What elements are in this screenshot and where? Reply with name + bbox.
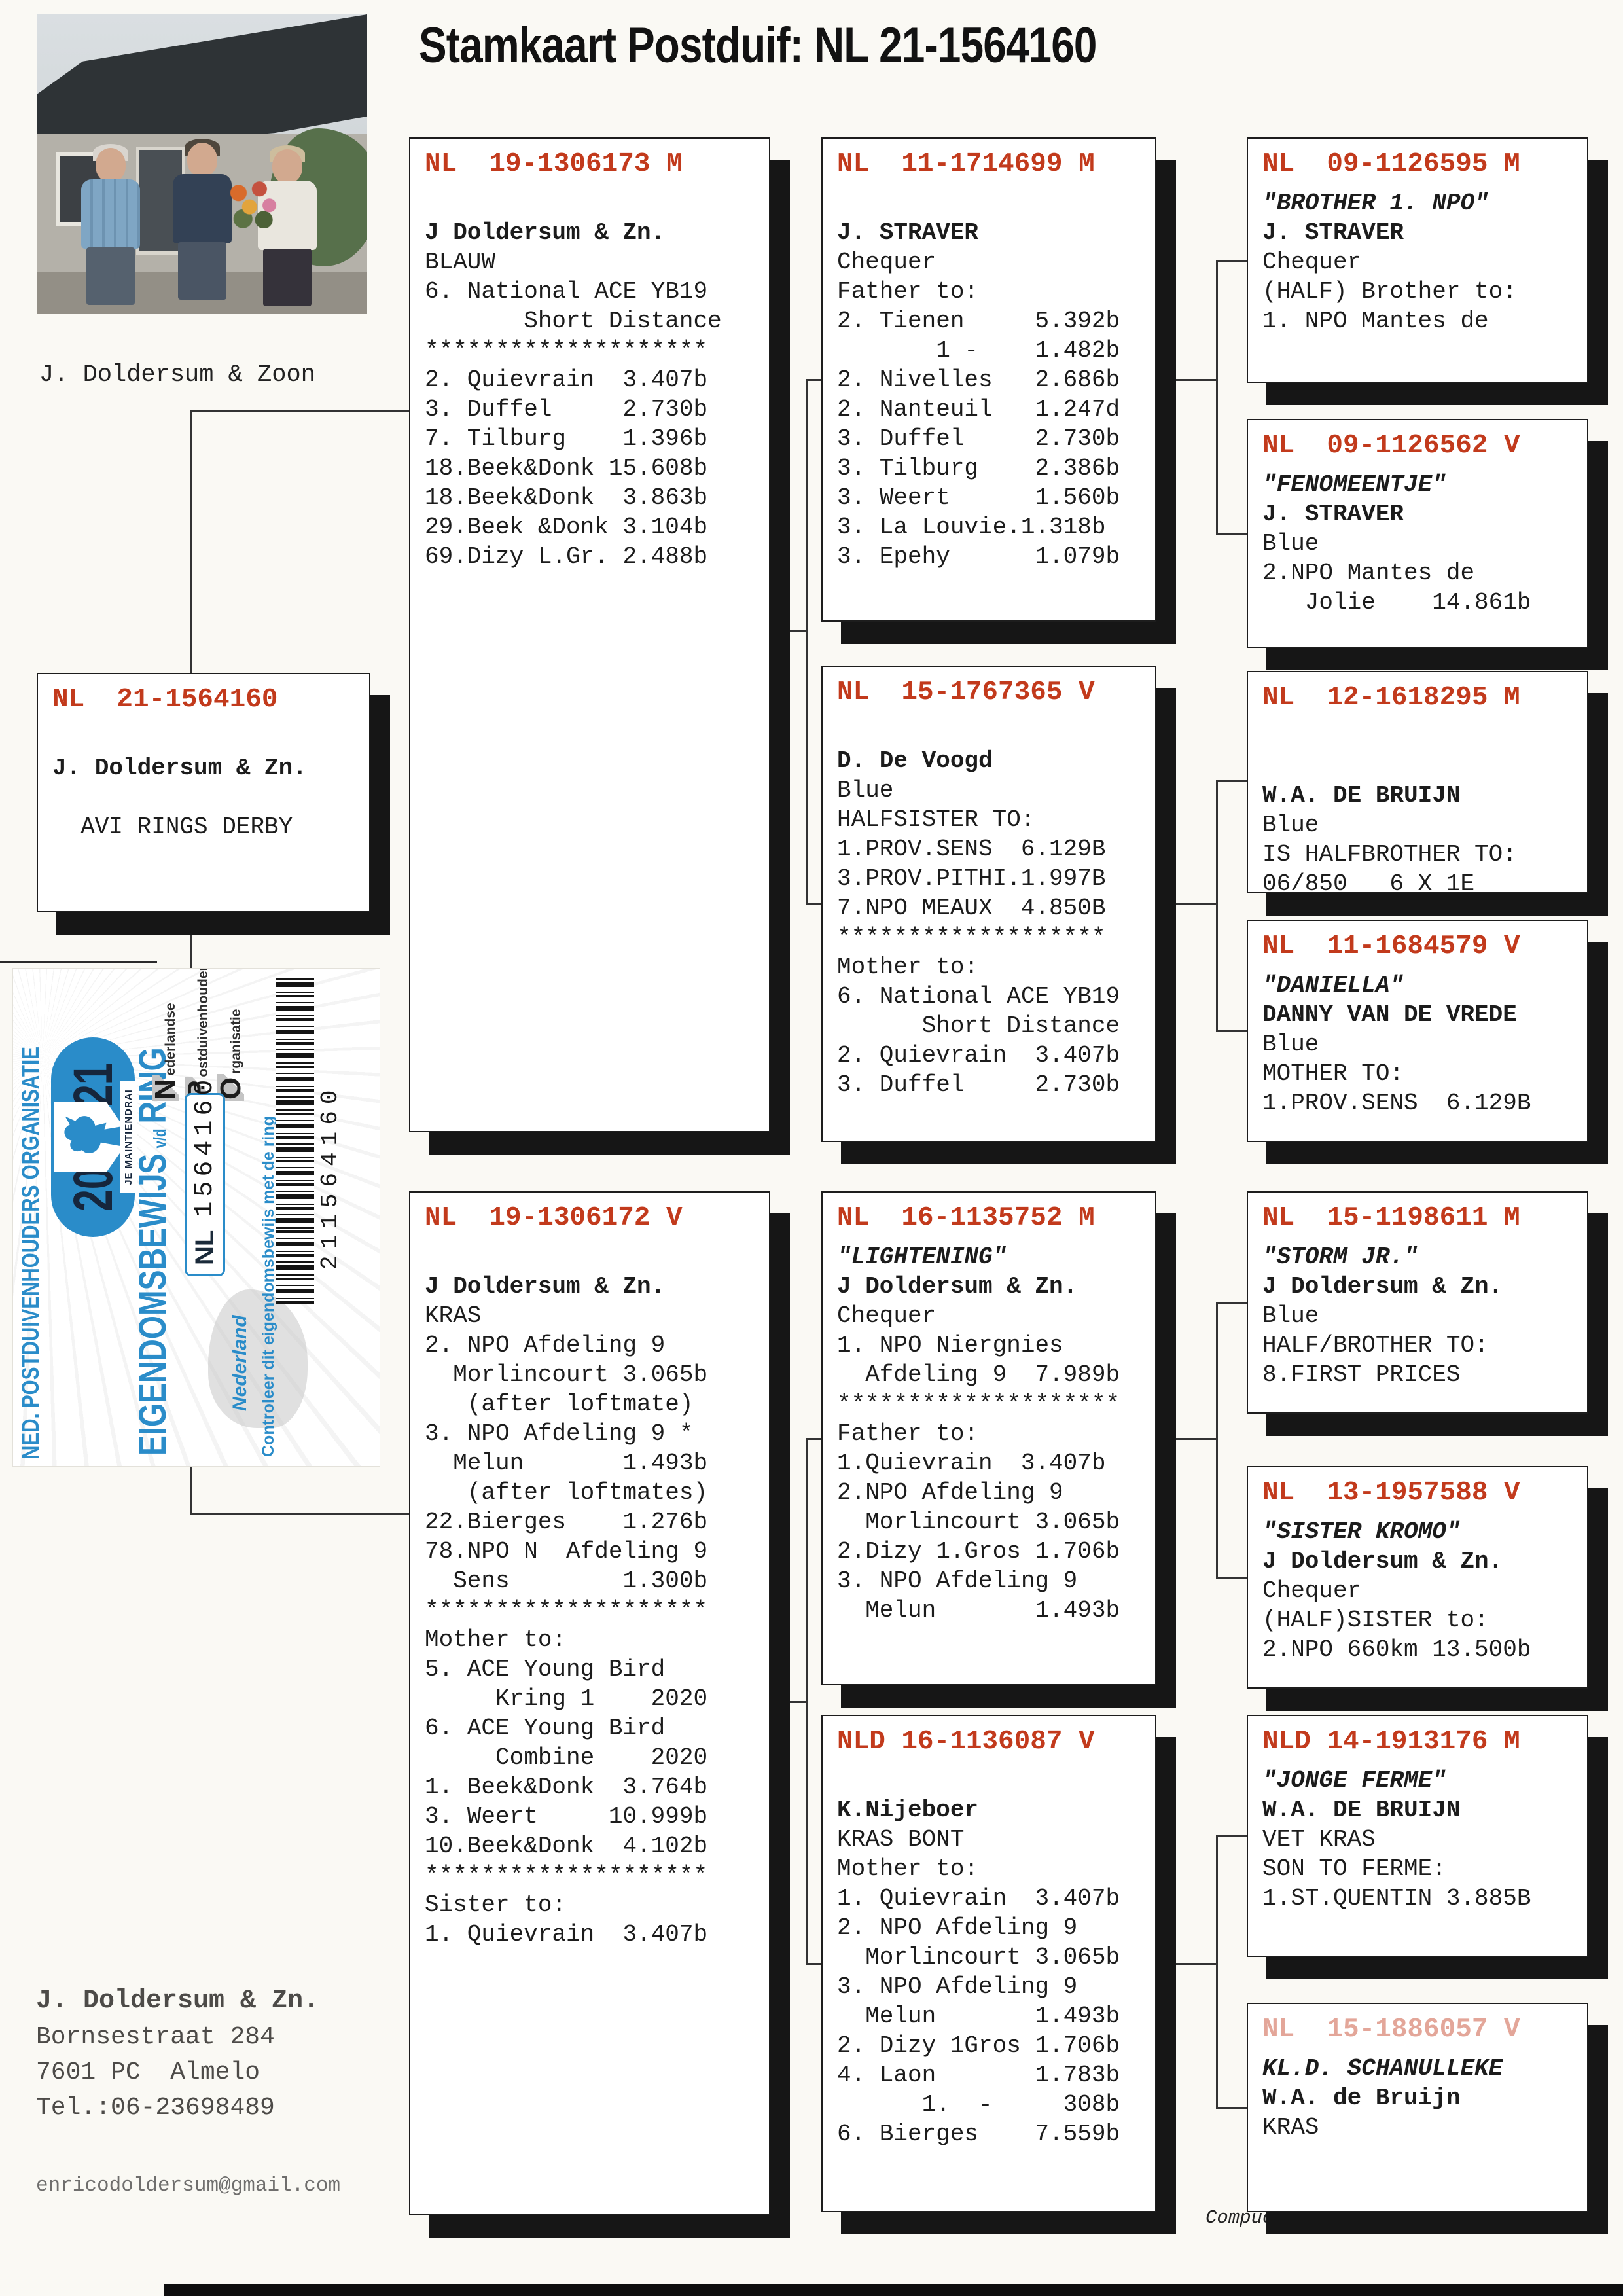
pedigree-text-line: "DANIELLA": [1262, 971, 1587, 1000]
pedigree-text-line: (HALF) Brother to:: [1262, 277, 1587, 306]
pedigree-text-line: 3. Tilburg 2.386b: [837, 454, 1155, 483]
ring-number-header: NL 09-1126562 V: [1262, 431, 1587, 461]
pedigree-text-line: W.A. de Bruijn: [1262, 2083, 1587, 2113]
pedigree-text-line: Chequer: [837, 1301, 1155, 1331]
pedigree-text-line: 2.Dizy 1.Gros 1.706b: [837, 1537, 1155, 1566]
ring-number-header: NL 12-1618295 M: [1262, 683, 1587, 713]
connector-line: [806, 1963, 821, 1965]
pedigree-text-line: [1262, 722, 1587, 751]
ring-number-header: NL 15-1886057 V: [1262, 2015, 1587, 2045]
pedigree-text-line: Chequer: [1262, 247, 1587, 277]
pedigree-text-line: KRAS: [1262, 2113, 1587, 2142]
pedigree-text-line: Jolie 14.861b: [1262, 588, 1587, 617]
pedigree-text-line: 6. National ACE YB19: [425, 277, 769, 306]
ring-number-header: NL 09-1126595 M: [1262, 149, 1587, 179]
pedigree-text-line: 1 - 1.482b: [837, 336, 1155, 365]
ring-number-header: NL 15-1767365 V: [837, 677, 1155, 708]
pedigree-box-subject: NL 21-1564160 J. Doldersum & Zn. AVI RIN…: [37, 673, 370, 912]
pedigree-text-line: Mother to:: [837, 952, 1155, 982]
pedigree-text-line: 2. Quievrain 3.407b: [837, 1041, 1155, 1070]
pedigree-text-line: (HALF)SISTER to:: [1262, 1605, 1587, 1635]
pedigree-text-line: 6. Bierges 7.559b: [837, 2119, 1155, 2149]
pedigree-text-line: 29.Beek &Donk 3.104b: [425, 512, 769, 542]
ring-id-box: NL 1564160: [185, 1093, 225, 1276]
pedigree-text-line: J. Doldersum & Zn.: [52, 753, 369, 783]
page: { "title": "Stamkaart Postduif: NL 21-15…: [0, 0, 1623, 2296]
sticker-face: NED. POSTDUIVENHOUDERS ORGANISATIE 20 21…: [13, 969, 380, 1466]
pedigree-text-line: "STORM JR.": [1262, 1242, 1587, 1272]
connector-line: [806, 1438, 821, 1440]
pedigree-text-line: Mother to:: [425, 1625, 769, 1655]
pedigree-text-line: [52, 724, 369, 753]
pedigree-text-line: ********************: [425, 1596, 769, 1625]
pedigree-box-pgf-m: NL 09-1126562 V"FENOMEENTJE"J. STRAVERBl…: [1247, 419, 1588, 648]
pedigree-text-line: 1. Quievrain 3.407b: [425, 1920, 769, 1949]
pedigree-text-line: 18.Beek&Donk 3.863b: [425, 483, 769, 512]
pedigree-text-line: MOTHER TO:: [1262, 1059, 1587, 1088]
pedigree-text-line: Melun 1.493b: [425, 1448, 769, 1478]
pedigree-text-line: 22.Bierges 1.276b: [425, 1507, 769, 1537]
pedigree-text-line: KRAS BONT: [837, 1825, 1155, 1854]
pedigree-text-line: 3. Duffel 2.730b: [837, 1070, 1155, 1100]
pedigree-text-line: [1262, 751, 1587, 781]
pedigree-text-line: W.A. DE BRUIJN: [1262, 1795, 1587, 1825]
ring-number-header: NL 13-1957588 V: [1262, 1478, 1587, 1508]
connector-line: [806, 903, 821, 905]
ring-number-header: NLD 16-1136087 V: [837, 1727, 1155, 1757]
pedigree-text-line: "BROTHER 1. NPO": [1262, 188, 1587, 218]
pedigree-text-line: KRAS: [425, 1301, 769, 1331]
pedigree-text-line: BLAUW: [425, 247, 769, 277]
photo-person-left: [71, 148, 149, 305]
pedigree-text-line: [52, 783, 369, 812]
pedigree-text-line: Combine 2020: [425, 1743, 769, 1772]
flower-bouquet: [226, 178, 281, 228]
pedigree-text-line: Chequer: [1262, 1576, 1587, 1605]
connector-line: [1216, 1030, 1247, 1032]
pedigree-text-line: AVI RINGS DERBY: [52, 812, 369, 842]
pedigree-text-line: "LIGHTENING": [837, 1242, 1155, 1272]
pedigree-text-line: Blue: [1262, 1030, 1587, 1059]
connector-line: [1216, 2107, 1247, 2109]
pedigree-text-line: Mother to:: [837, 1854, 1155, 1884]
pedigree-text-line: Kring 1 2020: [425, 1684, 769, 1713]
year-right: 21: [62, 1063, 125, 1107]
pedigree-text-line: DANNY VAN DE VREDE: [1262, 1000, 1587, 1030]
pedigree-box-mgf-f: NL 15-1198611 M"STORM JR."J Doldersum & …: [1247, 1191, 1588, 1414]
connector-line: [1216, 780, 1247, 782]
nederland-map-shape: [208, 1289, 308, 1428]
barcode: [276, 978, 314, 1304]
pedigree-text-line: J Doldersum & Zn.: [1262, 1272, 1587, 1301]
pedigree-text-line: 69.Dizy L.Gr. 2.488b: [425, 542, 769, 571]
pedigree-text-line: J Doldersum & Zn.: [837, 1272, 1155, 1301]
year-pill: 20 21 JE MAINTIENDRAI: [51, 1037, 135, 1237]
family-photo: [37, 14, 367, 314]
pedigree-box-mgf: NL 16-1135752 M"LIGHTENING"J Doldersum &…: [821, 1191, 1156, 1685]
pedigree-text-line: 3. NPO Afdeling 9 *: [425, 1419, 769, 1448]
pedigree-text-line: J Doldersum & Zn.: [425, 218, 769, 247]
pedigree-text-line: Morlincourt 3.065b: [425, 1360, 769, 1390]
year-left: 20: [62, 1168, 125, 1211]
pedigree-text-line: 2. Nivelles 2.686b: [837, 365, 1155, 395]
owner-name: J. Doldersum & Zn.: [36, 1983, 319, 2020]
owner-city: 7601 PC Almelo: [36, 2055, 319, 2090]
pedigree-text-line: HALFSISTER TO:: [837, 805, 1155, 834]
connector-line: [806, 379, 808, 905]
pedigree-text-line: 1. NPO Mantes de: [1262, 306, 1587, 336]
pedigree-text-line: Chequer: [837, 247, 1155, 277]
connector-line: [1216, 1577, 1247, 1579]
connector-line: [1156, 1963, 1216, 1965]
pedigree-text-line: Sister to:: [425, 1890, 769, 1920]
pedigree-text-line: 1. NPO Niergnies: [837, 1331, 1155, 1360]
photo-person-right: [247, 149, 326, 306]
pedigree-text-line: [837, 717, 1155, 746]
pedigree-text-line: *******************: [837, 923, 1155, 952]
connector-line: [1216, 260, 1247, 262]
pedigree-text-line: 1.PROV.SENS 6.129B: [1262, 1088, 1587, 1118]
pedigree-text-line: Short Distance: [837, 1011, 1155, 1041]
pedigree-text-line: 2.NPO Afdeling 9: [837, 1478, 1155, 1507]
pedigree-text-line: 3.PROV.PITHI.1.997B: [837, 864, 1155, 893]
pedigree-text-line: 2. Quievrain 3.407b: [425, 365, 769, 395]
pedigree-text-line: Blue: [1262, 1301, 1587, 1331]
pedigree-box-pgm-f: NL 12-1618295 M W.A. DE BRUIJNBlueIS HAL…: [1247, 671, 1588, 893]
pedigree-box-mgm: NLD 16-1136087 V K.NijeboerKRAS BONTMoth…: [821, 1715, 1156, 2212]
pedigree-text-line: Melun 1.493b: [837, 2001, 1155, 2031]
pedigree-text-line: 4. Laon 1.783b: [837, 2060, 1155, 2090]
pedigree-box-father: NL 19-1306173 M J Doldersum & Zn.BLAUW6.…: [409, 137, 770, 1132]
pedigree-text-line: J. STRAVER: [837, 218, 1155, 247]
pedigree-box-pgm-m: NL 11-1684579 V"DANIELLA"DANNY VAN DE VR…: [1247, 920, 1588, 1142]
connector-line: [1216, 1302, 1247, 1304]
page-title: Stamkaart Postduif: NL 21-1564160: [419, 17, 1097, 74]
pedigree-box-mgm-m: NL 15-1886057 VKL.D. SCHANULLEKEW.A. de …: [1247, 2003, 1588, 2212]
connector-line: [806, 1438, 808, 1965]
pedigree-text-line: [425, 1242, 769, 1272]
barcode-number: 211564160: [317, 1084, 344, 1270]
pedigree-text-line: "SISTER KROMO": [1262, 1517, 1587, 1547]
pedigree-box-mgm-f: NLD 14-1913176 M"JONGE FERME"W.A. DE BRU…: [1247, 1715, 1588, 1957]
scan-fold-line: [0, 961, 157, 963]
pedigree-text-line: 10.Beek&Donk 4.102b: [425, 1831, 769, 1861]
owner-email: enricodoldersum@gmail.com: [36, 2174, 340, 2197]
pedigree-box-pgf-f: NL 09-1126595 M"BROTHER 1. NPO"J. STRAVE…: [1247, 137, 1588, 383]
pedigree-text-line: 7. Tilburg 1.396b: [425, 424, 769, 454]
pedigree-text-line: 2. Tienen 5.392b: [837, 306, 1155, 336]
pedigree-text-line: Father to:: [837, 1419, 1155, 1448]
pedigree-box-mgf-m: NL 13-1957588 V"SISTER KROMO"J Doldersum…: [1247, 1466, 1588, 1689]
pedigree-text-line: Melun 1.493b: [837, 1596, 1155, 1625]
connector-line: [1156, 903, 1216, 905]
ring-certificate-sticker: NED. POSTDUIVENHOUDERS ORGANISATIE 20 21…: [13, 969, 380, 1466]
pedigree-text-line: 78.NPO N Afdeling 9: [425, 1537, 769, 1566]
pedigree-text-line: HALF/BROTHER TO:: [1262, 1331, 1587, 1360]
sticker-check-text: Controleer dit eigendomsbewijs met de ri…: [259, 1116, 278, 1457]
ring-number-header: NL 15-1198611 M: [1262, 1203, 1587, 1233]
connector-line: [1156, 379, 1216, 381]
pedigree-text-line: 3. NPO Afdeling 9: [837, 1972, 1155, 2001]
pedigree-text-line: 6. National ACE YB19: [837, 982, 1155, 1011]
pedigree-text-line: [425, 188, 769, 218]
photo-caption: J. Doldersum & Zoon: [39, 361, 315, 389]
pedigree-text-line: 1.Quievrain 3.407b: [837, 1448, 1155, 1478]
ring-number-header: NL 11-1714699 M: [837, 149, 1155, 179]
pedigree-text-line: 18.Beek&Donk 15.608b: [425, 454, 769, 483]
pedigree-text-line: D. De Voogd: [837, 746, 1155, 776]
pedigree-text-line: 06/850 6 X 1E: [1262, 869, 1587, 899]
connector-line: [1216, 1835, 1247, 1837]
pedigree-text-line: 1. - 308b: [837, 2090, 1155, 2119]
pedigree-text-line: 2.NPO Mantes de: [1262, 558, 1587, 588]
pedigree-text-line: J. STRAVER: [1262, 499, 1587, 529]
connector-line: [770, 1701, 808, 1703]
pedigree-text-line: Afdeling 9 7.989b: [837, 1360, 1155, 1390]
pedigree-text-line: SON TO FERME:: [1262, 1854, 1587, 1884]
connector-line: [1156, 1438, 1216, 1440]
pedigree-text-line: 3. Duffel 2.730b: [425, 395, 769, 424]
ring-number-header: NL 16-1135752 M: [837, 1203, 1155, 1233]
pedigree-text-line: Sens 1.300b: [425, 1566, 769, 1596]
pedigree-text-line: J Doldersum & Zn.: [425, 1272, 769, 1301]
pedigree-text-line: 6. ACE Young Bird: [425, 1713, 769, 1743]
pedigree-text-line: ********************: [425, 1861, 769, 1890]
pedigree-text-line: 2. Dizy 1Gros 1.706b: [837, 2031, 1155, 2060]
pedigree-text-line: (after loftmates): [425, 1478, 769, 1507]
pedigree-text-line: Father to:: [837, 277, 1155, 306]
country-code: NL: [190, 1230, 220, 1265]
connector-line: [770, 630, 808, 632]
pedigree-text-line: Blue: [1262, 810, 1587, 840]
pedigree-text-line: 7.NPO MEAUX 4.850B: [837, 893, 1155, 923]
pedigree-text-line: J Doldersum & Zn.: [1262, 1547, 1587, 1576]
pedigree-text-line: Short Distance: [425, 306, 769, 336]
pedigree-text-line: Blue: [1262, 529, 1587, 558]
sticker-org-title: NED. POSTDUIVENHOUDERS ORGANISATIE: [17, 1047, 45, 1460]
pedigree-text-line: 1.ST.QUENTIN 3.885B: [1262, 1884, 1587, 1913]
pedigree-text-line: 3. Duffel 2.730b: [837, 424, 1155, 454]
ring-number-header: NL 19-1306172 V: [425, 1203, 769, 1233]
pedigree-text-line: ********************: [425, 336, 769, 365]
owner-street: Bornsestraat 284: [36, 2020, 319, 2055]
pedigree-text-line: [837, 188, 1155, 218]
pedigree-text-line: Blue: [837, 776, 1155, 805]
pedigree-text-line: 2. NPO Afdeling 9: [425, 1331, 769, 1360]
pedigree-text-line: (after loftmate): [425, 1390, 769, 1419]
pedigree-text-line: ********************: [837, 1390, 1155, 1419]
ring-number-header: NLD 14-1913176 M: [1262, 1727, 1587, 1757]
pedigree-text-line: 1.PROV.SENS 6.129B: [837, 834, 1155, 864]
connector-line: [190, 410, 409, 412]
ring-number-value: 1564160: [190, 1075, 220, 1217]
pedigree-text-line: 2. NPO Afdeling 9: [837, 1913, 1155, 1943]
pedigree-text-line: 8.FIRST PRICES: [1262, 1360, 1587, 1390]
pedigree-text-line: [837, 1766, 1155, 1795]
pedigree-text-line: 1. Quievrain 3.407b: [837, 1884, 1155, 1913]
connector-line: [190, 1513, 409, 1515]
pedigree-box-pgf: NL 11-1714699 M J. STRAVERChequerFather …: [821, 137, 1156, 622]
connector-line: [1216, 533, 1247, 535]
ring-number-header: NL 19-1306173 M: [425, 149, 769, 179]
lion-crest-icon: [54, 1102, 131, 1173]
pedigree-text-line: 3. La Louvie.1.318b: [837, 512, 1155, 542]
pedigree-text-line: 3. Weert 1.560b: [837, 483, 1155, 512]
pedigree-text-line: 3. NPO Afdeling 9: [837, 1566, 1155, 1596]
connector-line: [806, 379, 821, 381]
pedigree-text-line: "FENOMEENTJE": [1262, 470, 1587, 499]
pedigree-box-mother: NL 19-1306172 V J Doldersum & Zn.KRAS2. …: [409, 1191, 770, 2215]
connector-line: [1216, 1302, 1218, 1579]
pedigree-text-line: 2.NPO 660km 13.500b: [1262, 1635, 1587, 1664]
pedigree-text-line: 1. Beek&Donk 3.764b: [425, 1772, 769, 1802]
pedigree-text-line: 2. Nanteuil 1.247d: [837, 395, 1155, 424]
pedigree-text-line: Morlincourt 3.065b: [837, 1507, 1155, 1537]
connector-line: [1216, 1835, 1218, 2109]
pedigree-text-line: J. STRAVER: [1262, 218, 1587, 247]
pedigree-text-line: VET KRAS: [1262, 1825, 1587, 1854]
owner-address-stamp: J. Doldersum & Zn. Bornsestraat 284 7601…: [36, 1983, 319, 2126]
owner-phone: Tel.:06-23698489: [36, 2090, 319, 2126]
ring-number-header: NL 21-1564160: [52, 685, 369, 715]
pedigree-text-line: IS HALFBROTHER TO:: [1262, 840, 1587, 869]
sticker-title: EIGENDOMSBEWIJS v/d RING: [131, 1047, 175, 1456]
pedigree-text-line: 3. Weert 10.999b: [425, 1802, 769, 1831]
scan-edge-bar: [164, 2284, 1623, 2296]
pedigree-text-line: W.A. DE BRUIJN: [1262, 781, 1587, 810]
ring-number-header: NL 11-1684579 V: [1262, 931, 1587, 961]
connector-line: [1216, 260, 1218, 535]
pedigree-text-line: Morlincourt 3.065b: [837, 1943, 1155, 1972]
pedigree-box-pgm: NL 15-1767365 V D. De VoogdBlueHALFSISTE…: [821, 666, 1156, 1142]
pedigree-text-line: "JONGE FERME": [1262, 1766, 1587, 1795]
pedigree-text-line: 3. Epehy 1.079b: [837, 542, 1155, 571]
connector-line: [1216, 780, 1218, 1032]
pedigree-text-line: KL.D. SCHANULLEKE: [1262, 2054, 1587, 2083]
pedigree-text-line: 5. ACE Young Bird: [425, 1655, 769, 1684]
sticker-country: Nederland: [229, 1315, 251, 1411]
pedigree-text-line: K.Nijeboer: [837, 1795, 1155, 1825]
